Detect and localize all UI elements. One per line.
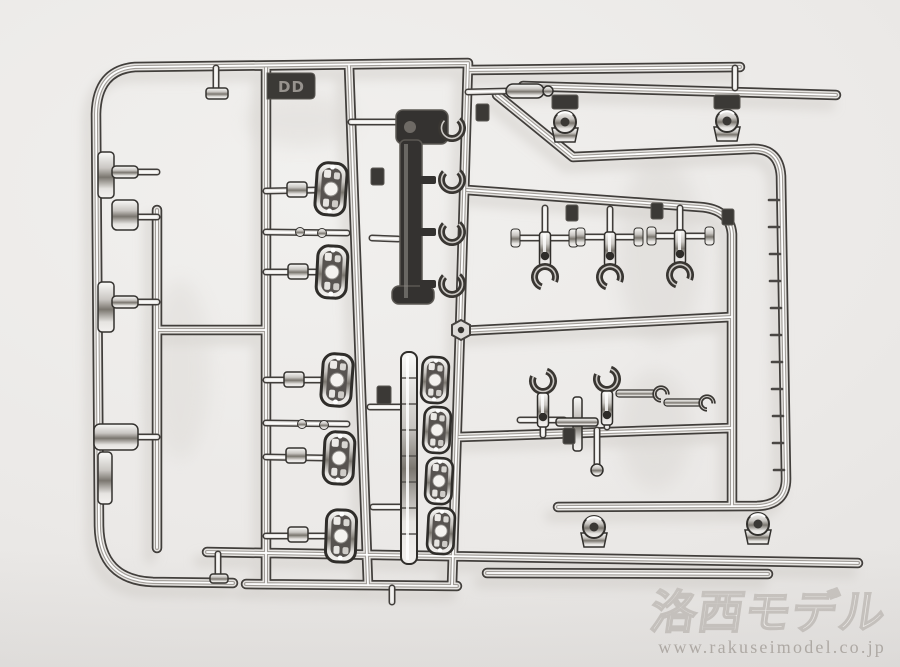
sprue-letter-tag: DD [278,78,305,96]
gate-hub [452,320,470,340]
product-photo: DD 洛西モデル www.rakuseimodel.co.jp [0,0,900,667]
chrome-sprue: DD [0,0,900,667]
step-strip-and-lamps [401,352,455,564]
cylinder-part [506,84,553,98]
